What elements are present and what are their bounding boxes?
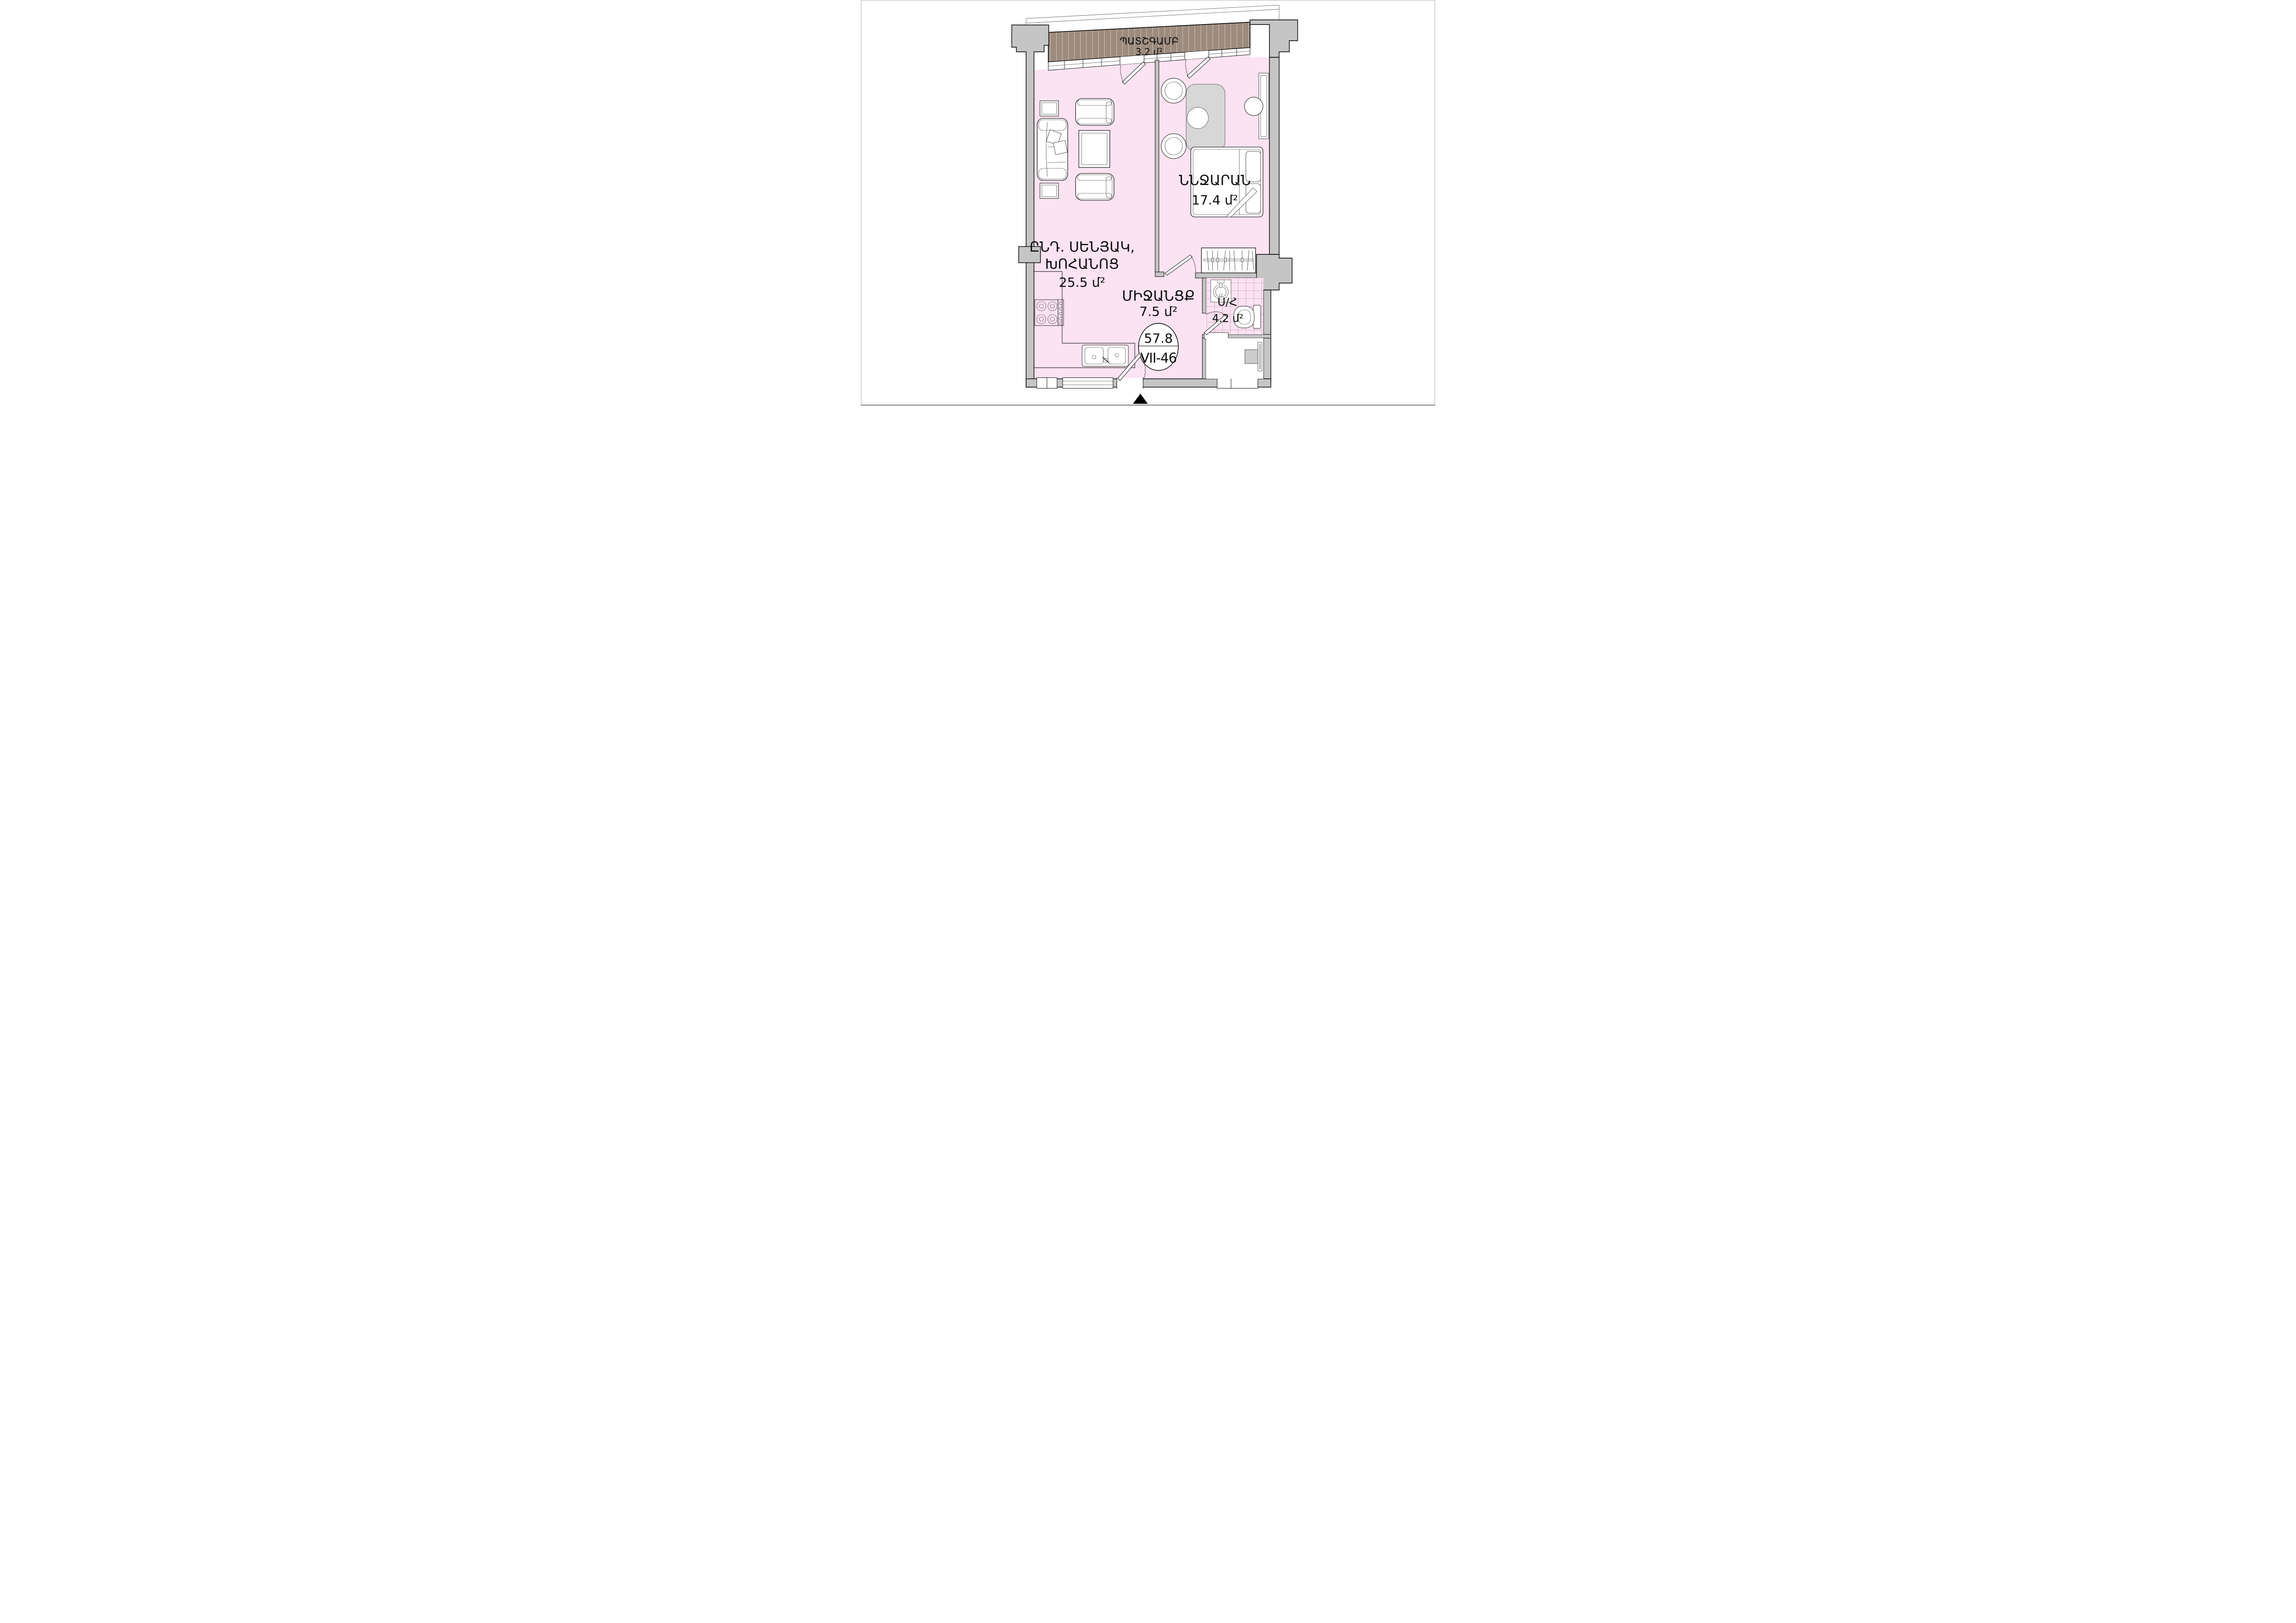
partition-living-bedroom: [1155, 60, 1159, 272]
floor-plan-page: ՊԱՏՇԳԱՄԲ 3.2 մ²: [861, 0, 1435, 406]
hanger-rail: [1204, 259, 1253, 261]
partition-foot: [1155, 272, 1164, 277]
desk-chair: [1244, 97, 1263, 116]
armchair: [1076, 99, 1114, 125]
bathroom-area: 4.2 մ²: [1212, 313, 1244, 325]
badge-total-area: 57.8: [1144, 331, 1173, 346]
radiator-core: [1259, 344, 1261, 369]
window-kitchen: [1063, 378, 1113, 389]
bathroom-label: Ս/Հ: [1218, 296, 1238, 309]
sofa: [1037, 118, 1068, 180]
sofa-pillow: [1053, 141, 1068, 155]
table-decor: [1187, 107, 1208, 129]
badge-unit-number: VII-46: [1140, 350, 1176, 366]
armchair: [1076, 173, 1114, 200]
bed: ՆՆՋԱՐԱՆ 17.4 մ²: [1179, 147, 1263, 217]
window-neighbor: [1217, 378, 1258, 389]
side-table: [1040, 101, 1058, 116]
bedroom-area: 17.4 մ²: [1192, 192, 1238, 208]
corridor-label: ՄԻՋԱՆՑՔ: [1122, 288, 1194, 304]
bedroom-label: ՆՆՋԱՐԱՆ: [1179, 173, 1250, 189]
window-small: [1037, 378, 1057, 389]
bathroom: Ս/Հ 4.2 մ²: [1204, 278, 1263, 339]
wardrobe: [1201, 248, 1256, 273]
side-table: [1040, 183, 1058, 198]
neighbor-left-wall: [1202, 338, 1206, 379]
bathroom-left-wall: [1202, 278, 1206, 313]
living-label-line1: ԸՆԴ. ՍԵՆՅԱԿ,: [1029, 239, 1135, 255]
shaft-box: [1245, 350, 1258, 364]
living-label-line2: ԽՈՀԱՆՈՑ: [1045, 256, 1119, 272]
right-wall-upper: [1269, 57, 1279, 254]
floor-plan-canvas: ՊԱՏՇԳԱՄԲ 3.2 մ²: [861, 0, 1435, 406]
corridor-area: 7.5 մ²: [1139, 304, 1177, 319]
living-area: 25.5 մ²: [1059, 275, 1105, 290]
balcony-label: ՊԱՏՇԳԱՄԲ: [1120, 36, 1179, 47]
coffee-table: [1079, 130, 1110, 167]
kitchen-sink: [1082, 345, 1128, 366]
neighbor-area: [1206, 338, 1263, 379]
bathroom-top-wall: [1195, 273, 1256, 278]
